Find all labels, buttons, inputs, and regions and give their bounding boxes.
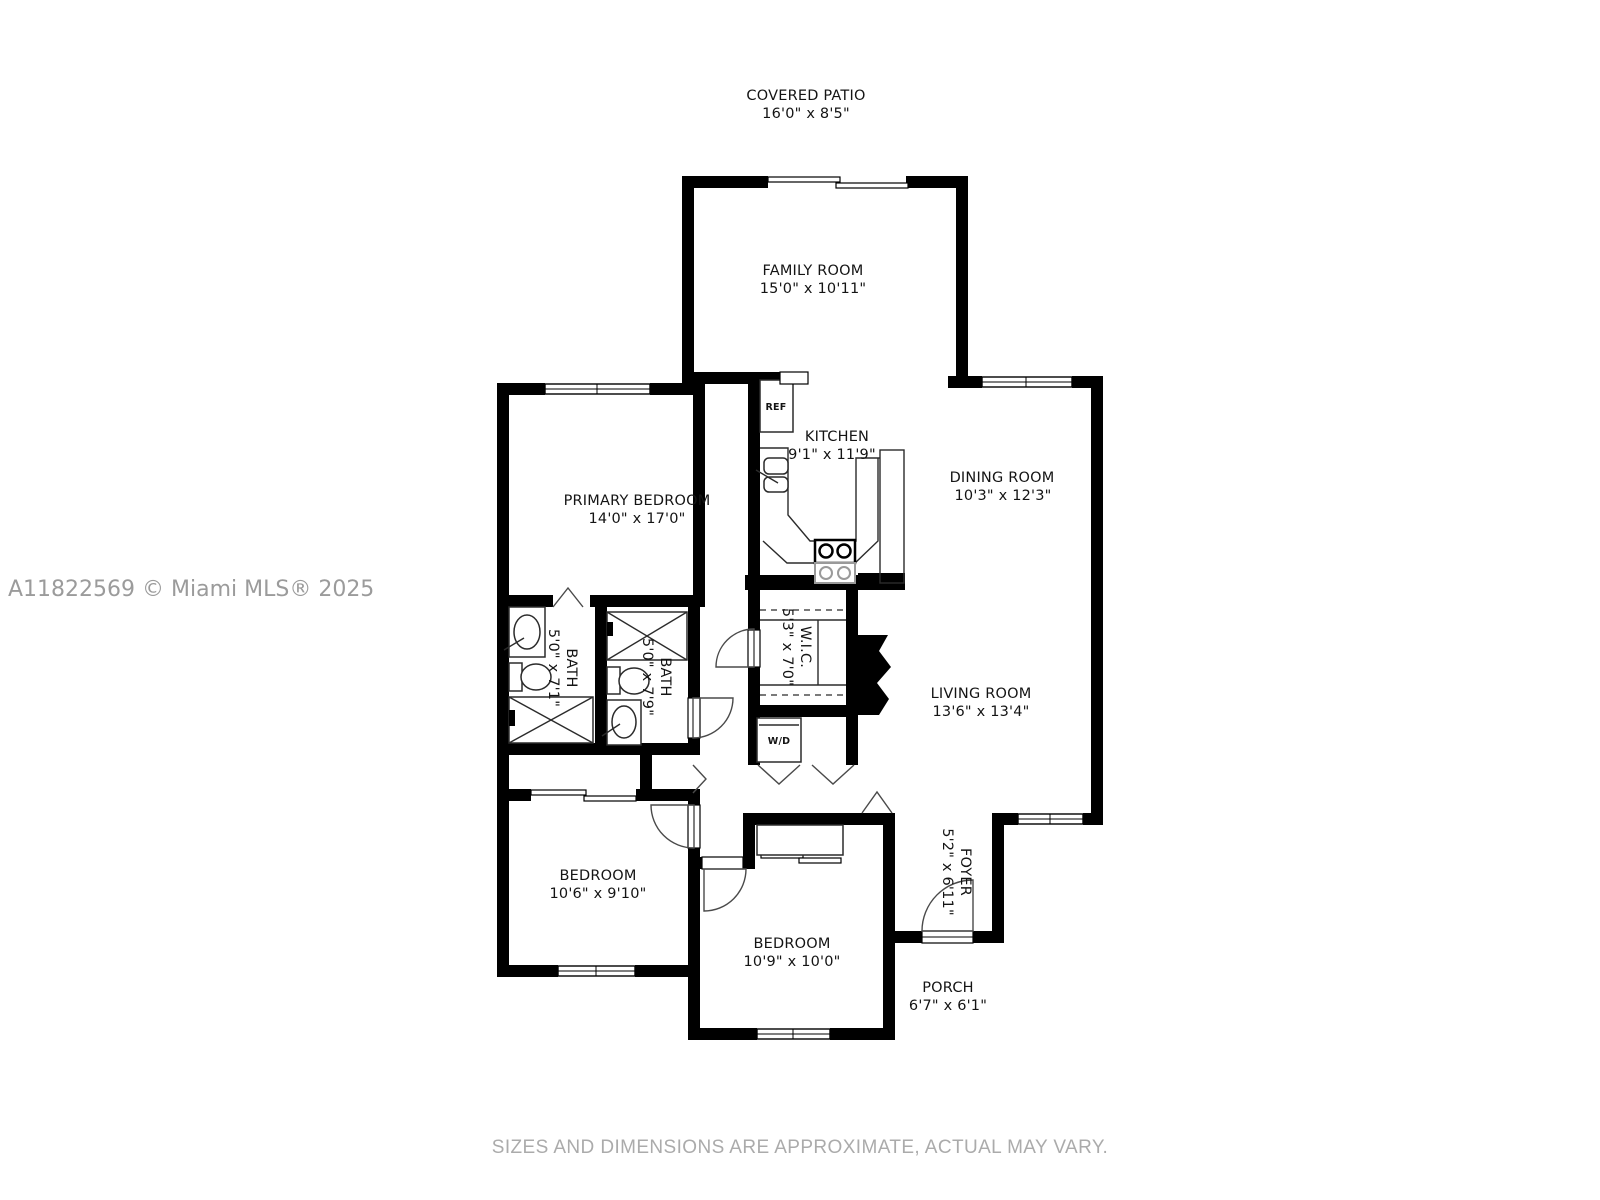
porch-name: PORCH	[922, 980, 974, 996]
bedroom-2-dims: 10'9" x 10'0"	[743, 954, 840, 970]
dining-room-name: DINING ROOM	[950, 470, 1055, 486]
bedroom-2-door	[704, 869, 746, 911]
bath-1-name: BATH	[563, 648, 579, 687]
bath-2-door-threshold	[688, 698, 700, 738]
window-bedroom-1	[558, 966, 635, 976]
bedroom-1-closet-sliding-door	[531, 790, 636, 801]
covered-patio-name: COVERED PATIO	[746, 88, 865, 104]
bedroom-2-name: BEDROOM	[753, 936, 830, 952]
kitchen-name: KITCHEN	[805, 429, 869, 445]
patio-sliding-door	[768, 177, 908, 188]
bath-2-name: BATH	[657, 657, 673, 696]
refrigerator-label: REF	[766, 402, 787, 413]
bedroom-2-closet	[757, 825, 843, 855]
floor-plan-page: COVERED PATIO 16'0" x 8'5" FAMILY ROOM 1…	[0, 0, 1600, 1200]
bath-1-label: BATH 5'0" x 7'1"	[545, 629, 579, 707]
window-primary-bedroom	[545, 384, 650, 394]
bedroom-1-dims: 10'6" x 9'10"	[549, 886, 646, 902]
foyer-opening-marker	[862, 792, 892, 813]
window-living-room	[1018, 814, 1083, 824]
bath-2-vanity	[602, 700, 641, 745]
wic-dims: 5'3" x 7'0"	[779, 608, 795, 686]
mls-watermark: A11822569 © Miami MLS® 2025	[8, 577, 374, 602]
room-labels: COVERED PATIO 16'0" x 8'5" FAMILY ROOM 1…	[545, 88, 1054, 1014]
foyer-dims: 5'2" x 6'11"	[939, 828, 955, 916]
wic-name: W.I.C.	[797, 626, 813, 668]
primary-bath-opening-marker	[553, 588, 583, 607]
range-stove	[815, 540, 855, 583]
foyer-label: FOYER 5'2" x 6'11"	[939, 828, 973, 916]
washer-dryer-label: W/D	[768, 736, 790, 747]
window-bedroom-2	[757, 1029, 830, 1039]
bedroom-1-name: BEDROOM	[559, 868, 636, 884]
porch-dims: 6'7" x 6'1"	[909, 998, 987, 1014]
bedroom-2-door-threshold	[702, 857, 743, 869]
foyer-name: FOYER	[957, 848, 973, 896]
bath-2-dims: 5'0" x 7'9"	[639, 638, 655, 716]
primary-bedroom-name: PRIMARY BEDROOM	[564, 493, 711, 509]
bath-1-dims: 5'0" x 7'1"	[545, 629, 561, 707]
bath-1-toilet	[509, 663, 551, 691]
laundry-bifold-door-left	[758, 765, 800, 784]
covered-patio-dims: 16'0" x 8'5"	[762, 106, 850, 122]
living-room-name: LIVING ROOM	[931, 686, 1032, 702]
floor-plan-drawing: COVERED PATIO 16'0" x 8'5" FAMILY ROOM 1…	[0, 0, 1600, 1200]
kitchen-sink	[756, 458, 788, 492]
primary-bedroom-dims: 14'0" x 17'0"	[588, 511, 685, 527]
living-room-dims: 13'6" x 13'4"	[932, 704, 1029, 720]
bath-1-vanity	[504, 607, 545, 657]
walls	[497, 176, 1103, 1040]
laundry-bifold-door-right	[812, 765, 854, 784]
family-room-dims: 15'0" x 10'11"	[760, 281, 867, 297]
family-room-name: FAMILY ROOM	[763, 263, 864, 279]
hall-opening-marker	[693, 765, 706, 793]
dining-room-dims: 10'3" x 12'3"	[954, 488, 1051, 504]
kitchen-dims: 9'1" x 11'9"	[788, 447, 876, 463]
disclaimer-text: SIZES AND DIMENSIONS ARE APPROXIMATE, AC…	[492, 1137, 1108, 1158]
window-dining-room	[982, 377, 1072, 387]
